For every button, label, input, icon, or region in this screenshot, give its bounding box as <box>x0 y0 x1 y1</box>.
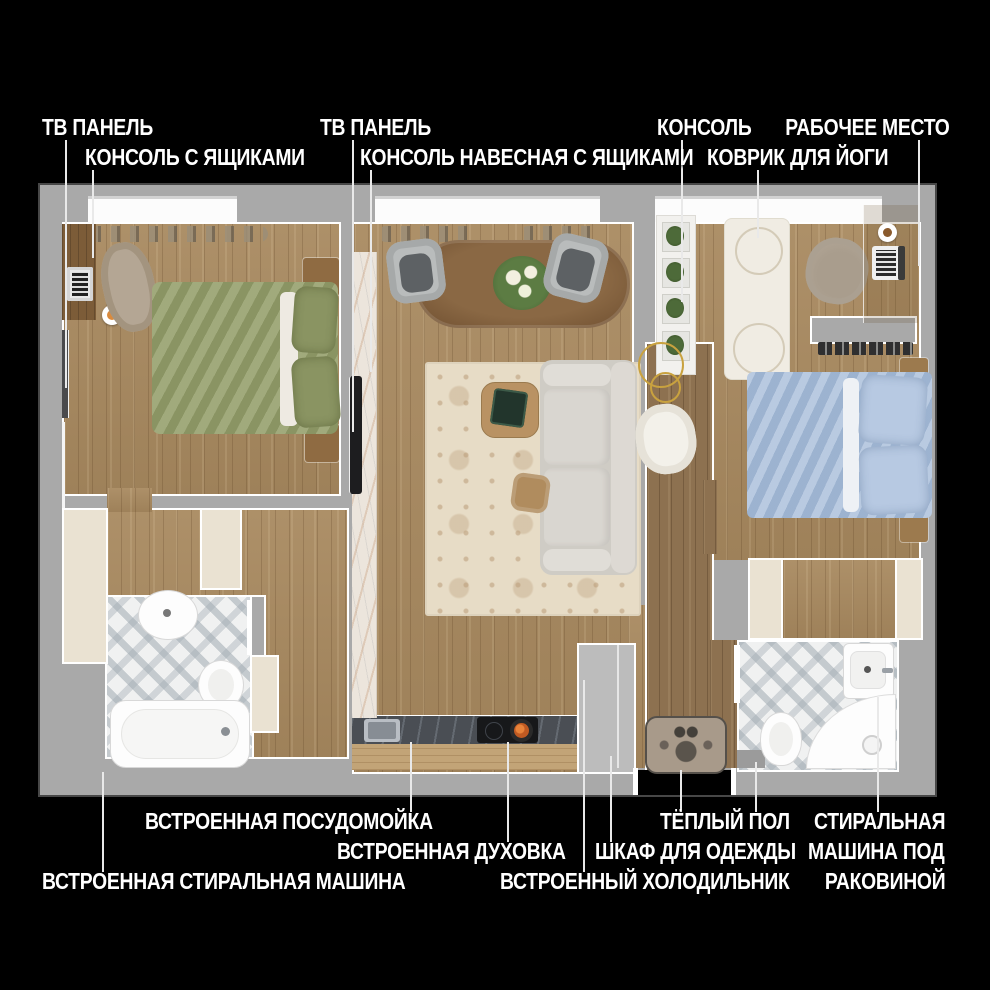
label-workplace: РАБОЧЕЕ МЕСТО <box>786 114 950 141</box>
laptop-desk <box>872 246 902 280</box>
leader-oven <box>507 742 509 842</box>
kitchen-sink <box>364 719 400 742</box>
corridor-cabinet-a <box>200 508 242 590</box>
mandala-bottom <box>733 323 785 375</box>
coffee-table <box>481 382 539 438</box>
apartment-plan <box>40 185 935 795</box>
sink1-drain <box>163 609 171 617</box>
leader-washer-under-sink <box>877 697 879 812</box>
label-washer-sink-3: РАКОВИНОЙ <box>825 868 945 895</box>
laptop-desk-keys <box>876 250 896 276</box>
label-washer-sink-2: МАШИНА ПОД <box>808 838 945 865</box>
bed-blue-sheet <box>843 378 859 512</box>
label-oven: ВСТРОЕННАЯ ДУХОВКА <box>337 838 566 865</box>
laptop-keys <box>72 272 88 296</box>
toilet1-bowl <box>208 669 234 701</box>
shower-drain <box>862 735 882 755</box>
leader-fridge <box>583 680 585 872</box>
owl-doormat <box>645 716 727 774</box>
wardrobe-right-section <box>895 558 923 640</box>
cooktop-burner <box>485 722 503 740</box>
pillow-blue-1 <box>858 374 929 446</box>
sofa-armrest-top <box>543 364 611 386</box>
laptop-bedroom1 <box>67 267 93 301</box>
sink-drain <box>864 666 871 673</box>
chair-seat <box>398 252 434 294</box>
leader-yoga-mat <box>757 170 759 238</box>
sink-faucet <box>882 668 893 673</box>
tablet <box>490 388 529 428</box>
mandala-top <box>735 227 783 275</box>
plant-box-2 <box>662 258 690 288</box>
leader-warm-floor-b <box>755 762 757 812</box>
pillow-green-1 <box>291 286 339 355</box>
curtain-bedroom1 <box>88 226 268 242</box>
bedroom2-door-opening <box>703 480 717 554</box>
bathroom2-toilet <box>760 712 802 766</box>
pillow-green-2 <box>291 355 342 428</box>
fridge-wardrobe-column <box>577 643 636 774</box>
entrance-jamb-right <box>731 768 736 795</box>
kitchen-sink-basin <box>368 722 396 739</box>
coffee-cup-desk <box>878 223 897 242</box>
chair-seat-2 <box>554 246 597 293</box>
wardrobe-left-section <box>748 558 785 640</box>
label-dishwasher: ВСТРОЕННАЯ ПОСУДОМОЙКА <box>145 808 433 835</box>
leader-warm-floor-a <box>680 770 682 812</box>
laptop-desk-screen <box>898 246 905 280</box>
bathroom2-door <box>734 645 740 703</box>
bathroom1-sink <box>138 590 198 640</box>
washer-cabinet <box>62 508 108 664</box>
toilet-bowl <box>769 722 793 756</box>
floor-plan-image: ТВ ПАНЕЛЬ КОНСОЛЬ С ЯЩИКАМИ ТВ ПАНЕЛЬ КО… <box>0 0 990 990</box>
leader-washing-machine <box>102 772 104 872</box>
kitchen-counter-front <box>352 744 577 770</box>
label-wardrobe: ШКАФ ДЛЯ ОДЕЖДЫ <box>595 838 796 865</box>
label-tv-panel-left: ТВ ПАНЕЛЬ <box>42 114 153 141</box>
label-yoga-mat: КОВРИК ДЛЯ ЙОГИ <box>707 144 888 171</box>
bathroom1-door <box>247 600 252 655</box>
label-washing-machine: ВСТРОЕННАЯ СТИРАЛЬНАЯ МАШИНА <box>42 868 405 895</box>
label-fridge: ВСТРОЕННЫЙ ХОЛОДИЛЬНИК <box>500 868 790 895</box>
mirror-small <box>650 372 681 403</box>
leader-console-wall <box>370 170 372 372</box>
label-console-wall: КОНСОЛЬ НАВЕСНАЯ С ЯЩИКАМИ <box>360 144 693 171</box>
leader-console-drawers <box>92 170 94 258</box>
corridor-cabinet-b <box>250 655 279 733</box>
sofa-cushion-1 <box>544 389 610 465</box>
label-tv-panel-center: ТВ ПАНЕЛЬ <box>320 114 431 141</box>
sofa <box>540 360 637 575</box>
bathroom2-sink-washer <box>843 643 894 699</box>
cup-desk-drink <box>883 228 892 237</box>
sofa-armrest-bottom <box>543 549 611 571</box>
frying-pan <box>510 719 533 742</box>
sofa-back <box>611 362 635 573</box>
pillow-blue-2 <box>858 444 929 515</box>
label-console-plants: КОНСОЛЬ <box>657 114 751 141</box>
dining-chair-left <box>384 237 447 305</box>
wall-ledge-bedroom1 <box>62 422 65 508</box>
label-washer-sink-1: СТИРАЛЬНАЯ <box>814 808 945 835</box>
wall-shelf-decor <box>818 342 913 355</box>
leader-wardrobe <box>610 756 612 842</box>
bathroom1-bathtub <box>110 700 250 768</box>
leader-workplace <box>918 140 920 266</box>
pan-food <box>514 723 529 738</box>
wardrobe-floor-section <box>781 558 899 640</box>
cooktop <box>477 717 538 743</box>
label-console-drawers: КОНСОЛЬ С ЯЩИКАМИ <box>85 144 305 171</box>
label-warm-floor: ТЁПЛЫЙ ПОЛ <box>660 808 790 835</box>
leader-tv-panel-left <box>65 140 67 388</box>
plant-box-1 <box>662 222 690 252</box>
bathtub-faucet <box>221 727 230 736</box>
leader-dishwasher <box>410 742 412 812</box>
bedroom1-door-opening <box>107 488 152 512</box>
plant-box-3 <box>662 294 690 324</box>
flower-bouquet <box>493 256 551 310</box>
entrance-jamb-left <box>633 768 638 795</box>
bathroom2-step <box>737 750 765 768</box>
tv-panel-living <box>349 376 362 494</box>
sofa-cushion-2 <box>544 468 610 546</box>
pouf-stool <box>510 472 552 515</box>
yoga-mat <box>724 218 790 380</box>
leader-tv-panel-center <box>352 140 354 432</box>
column-door-seam <box>617 645 619 768</box>
